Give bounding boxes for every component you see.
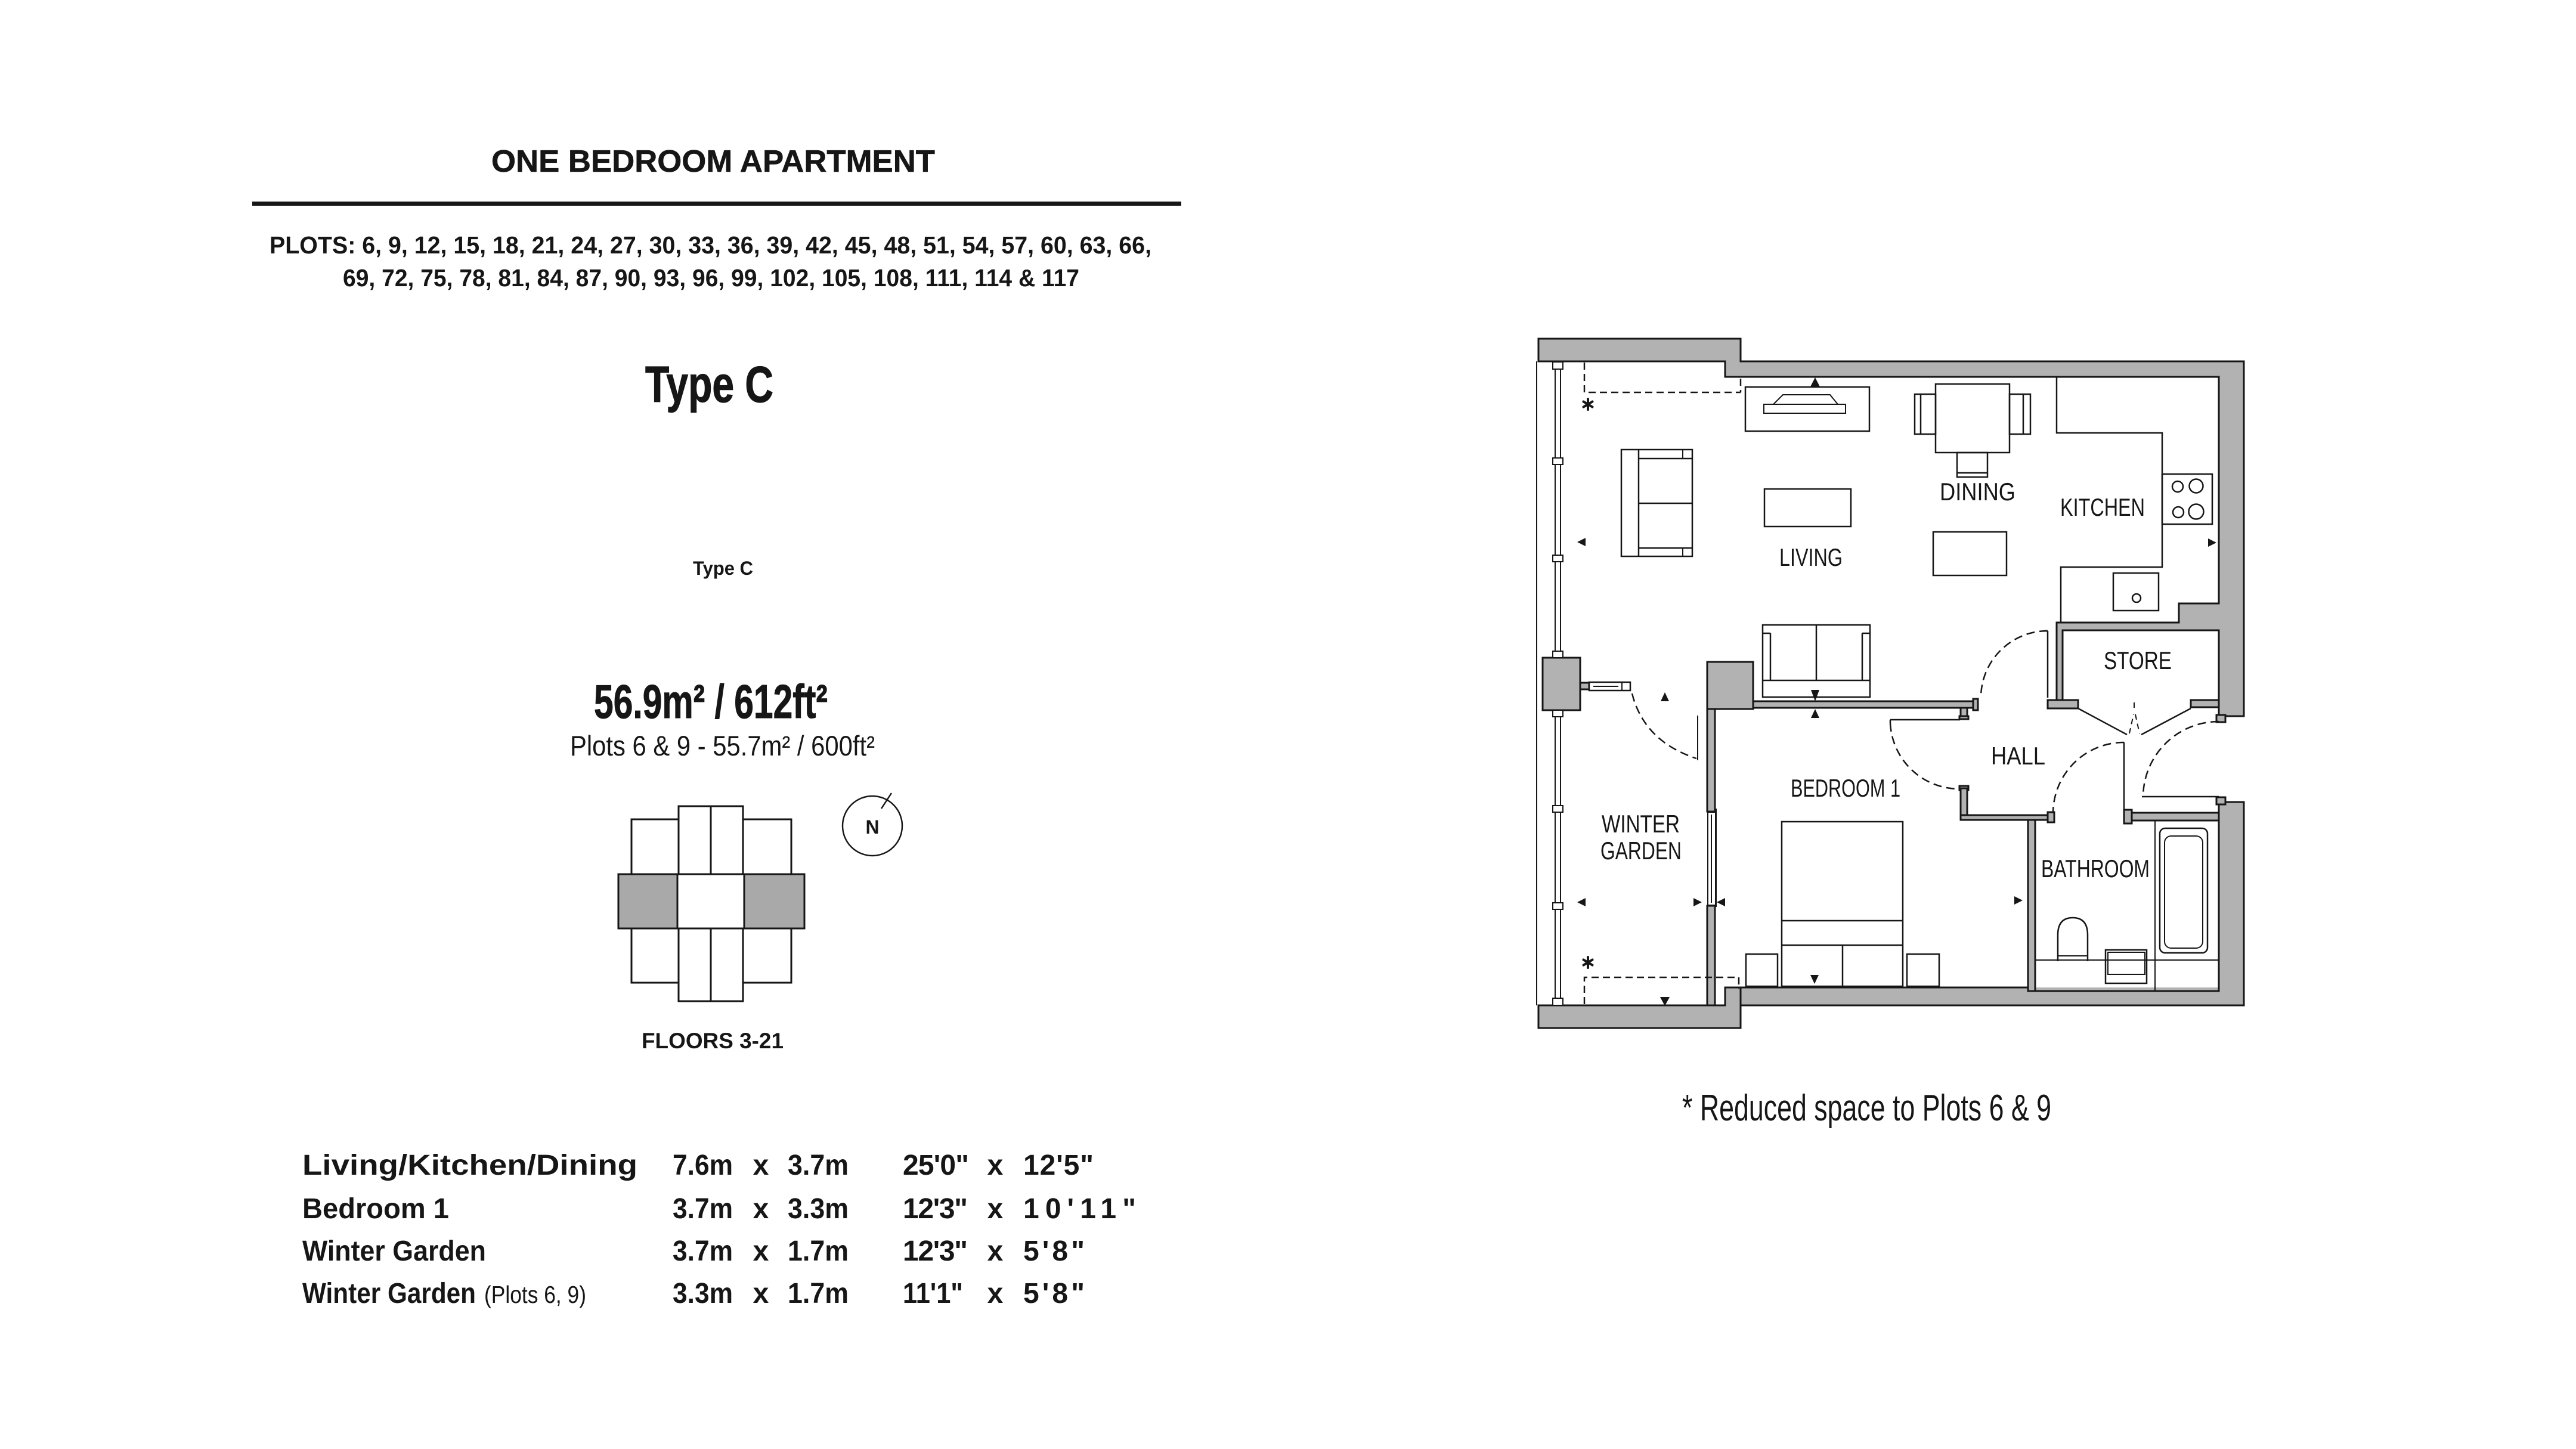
svg-text:(Plots 6, 9): (Plots 6, 9): [484, 1281, 586, 1308]
svg-text:25'0": 25'0": [903, 1150, 969, 1181]
svg-text:5'8": 5'8": [1023, 1236, 1085, 1267]
svg-text:BEDROOM 1: BEDROOM 1: [1791, 774, 1900, 802]
svg-text:12'3": 12'3": [903, 1193, 968, 1225]
svg-text:x: x: [753, 1150, 769, 1181]
svg-text:x: x: [987, 1150, 1004, 1181]
svg-text:FLOORS 3-21: FLOORS 3-21: [642, 1029, 784, 1053]
svg-text:* Reduced space to Plots 6 & 9: * Reduced space to Plots 6 & 9: [1682, 1088, 2051, 1129]
svg-text:BATHROOM: BATHROOM: [2041, 854, 2150, 883]
svg-text:x: x: [987, 1278, 1004, 1309]
svg-text:3.7m: 3.7m: [673, 1193, 733, 1225]
svg-text:PLOTS: 6, 9, 12, 15, 18, 21, 2: PLOTS: 6, 9, 12, 15, 18, 21, 24, 27, 30,…: [270, 231, 1151, 259]
svg-text:Type C: Type C: [693, 558, 753, 579]
svg-text:1.7m: 1.7m: [788, 1236, 849, 1267]
svg-text:HALL: HALL: [1991, 742, 2045, 770]
svg-text:12'5": 12'5": [1023, 1150, 1094, 1181]
svg-text:Winter Garden: Winter Garden: [302, 1278, 476, 1309]
svg-text:STORE: STORE: [2104, 646, 2172, 674]
svg-text:3.3m: 3.3m: [788, 1193, 849, 1225]
svg-text:x: x: [987, 1236, 1004, 1267]
svg-text:5'8": 5'8": [1023, 1278, 1085, 1309]
svg-text:KITCHEN: KITCHEN: [2060, 493, 2145, 521]
svg-text:3.3m: 3.3m: [673, 1278, 733, 1309]
svg-text:ONE BEDROOM APARTMENT: ONE BEDROOM APARTMENT: [491, 144, 935, 179]
svg-text:N: N: [865, 816, 879, 838]
svg-text:LIVING: LIVING: [1779, 543, 1843, 571]
svg-text:Winter Garden: Winter Garden: [302, 1236, 486, 1267]
svg-text:Type C: Type C: [645, 357, 773, 413]
svg-text:Plots 6 & 9 - 55.7m² / 600ft²: Plots 6 & 9 - 55.7m² / 600ft²: [570, 730, 875, 761]
svg-text:56.9m² / 612ft²: 56.9m² / 612ft²: [594, 675, 828, 728]
svg-text:1.7m: 1.7m: [788, 1278, 849, 1309]
svg-text:x: x: [753, 1236, 769, 1267]
svg-text:Living/Kitchen/Dining: Living/Kitchen/Dining: [302, 1150, 637, 1181]
svg-text:69, 72, 75, 78, 81, 84, 87, 90: 69, 72, 75, 78, 81, 84, 87, 90, 93, 96, …: [343, 264, 1079, 292]
svg-text:10'11": 10'11": [1023, 1193, 1136, 1225]
svg-text:x: x: [753, 1278, 769, 1309]
svg-text:3.7m: 3.7m: [788, 1150, 849, 1181]
svg-text:11'1": 11'1": [903, 1278, 963, 1309]
svg-text:DINING: DINING: [1940, 478, 2015, 506]
svg-text:7.6m: 7.6m: [673, 1150, 733, 1181]
svg-text:12'3": 12'3": [903, 1236, 968, 1267]
svg-text:3.7m: 3.7m: [673, 1236, 733, 1267]
svg-text:WINTER: WINTER: [1602, 810, 1680, 838]
svg-text:Bedroom 1: Bedroom 1: [302, 1193, 449, 1225]
svg-text:GARDEN: GARDEN: [1600, 837, 1682, 865]
svg-text:x: x: [987, 1193, 1004, 1225]
svg-text:x: x: [753, 1193, 769, 1225]
